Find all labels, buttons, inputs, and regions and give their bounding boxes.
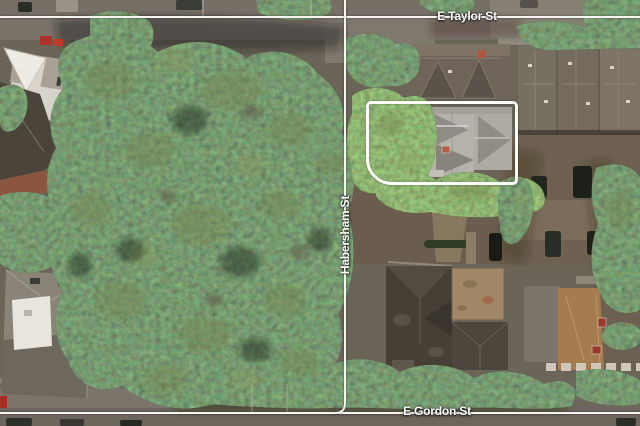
property-outline xyxy=(366,101,518,185)
north-house xyxy=(410,44,510,98)
street-label-gordon: E Gordon St xyxy=(403,404,471,418)
taylor-street-line xyxy=(0,16,640,18)
row-houses xyxy=(518,46,640,135)
aerial-map: E Taylor St Habersham St E Gordon St xyxy=(0,0,640,426)
street-label-taylor: E Taylor St xyxy=(437,9,497,23)
gordon-street-line xyxy=(0,412,640,414)
street-label-habersham: Habersham St xyxy=(338,196,352,274)
aerial-photo xyxy=(0,0,640,426)
